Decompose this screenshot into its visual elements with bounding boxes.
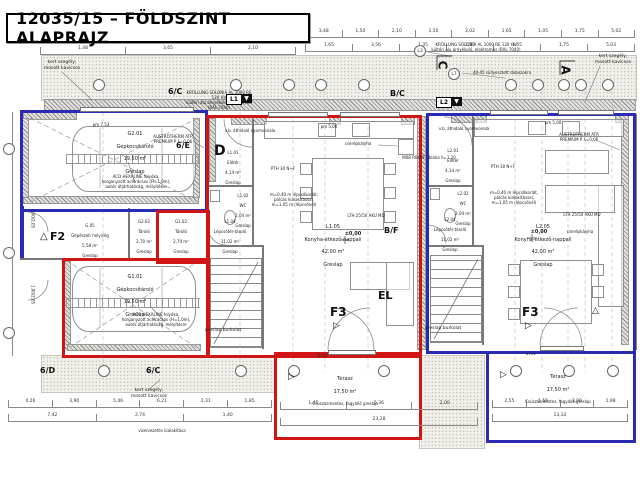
dim-value: 1,65 [488, 30, 525, 37]
dim-value: 2,74 [96, 414, 184, 421]
room-area: 4,14 m² [436, 168, 470, 173]
note-austrotherm-1: AUSTROTHERM ATR PREMIUM P λ=0,06 [148, 134, 198, 144]
room-floor: Greslap [130, 249, 158, 254]
marker-terrace-2-triangle: ▷ [500, 370, 507, 380]
dim-value: 2,10 [210, 47, 296, 54]
terrace-door-l2 [540, 346, 584, 351]
grid-bubble [358, 79, 370, 91]
dim-value: 1,75 [561, 30, 598, 37]
grid-bubble [3, 247, 15, 259]
note-greslap-2: greslap burkolat [414, 326, 472, 332]
dim-value: 1,50 [415, 30, 452, 37]
room-label-l1-05: L1.05 Konyha-étkező-nappali 42,00 m² Gre… [288, 218, 378, 274]
grid-bubble [575, 79, 587, 91]
dim-value: 3,48 [305, 30, 342, 37]
marker-flag-l1-triangle: ▼ [241, 94, 252, 103]
room-id: L2.04 [420, 217, 480, 222]
note-lth-2: LTH 25/50 AKU MD [554, 212, 610, 217]
room-id: L1.05 [288, 224, 378, 230]
callout-bubble-l7: L7 [448, 68, 460, 80]
window [340, 112, 400, 117]
marker-section-d: D [214, 143, 226, 159]
note-pm5-2: pm 5,00 [538, 120, 568, 125]
note-dobozok: 40-45 süllyesztett dobozokra [466, 70, 538, 75]
grid-bubble [505, 79, 517, 91]
room-name: Terasz [518, 374, 598, 380]
room-id: G1.01 [96, 274, 174, 280]
room-id: L2.01 [436, 148, 470, 153]
door-size-code-2: 1,00/2,05 [31, 282, 36, 308]
room-id: G2.02 [130, 219, 158, 224]
dim-chain-bottom-left-2: 7,422,741,40 [8, 414, 272, 422]
room-area: 17,50 m² [305, 389, 385, 395]
window [268, 112, 328, 117]
dim-value: 3,56 [352, 44, 399, 51]
room-name: Gépkocsitároló [96, 287, 174, 293]
marker-el: EL [378, 289, 393, 302]
room-area: 11,02 m² [200, 239, 260, 244]
marker-6c-bottom: 6/C [146, 366, 160, 375]
grid-bubble [235, 365, 247, 377]
marker-terrace-1-triangle: ▷ [288, 372, 295, 382]
marker-section-c: C [435, 61, 449, 70]
room-area: 17,50 m² [518, 387, 598, 393]
grid-bubble [98, 365, 110, 377]
dim-value: 3,02 [451, 30, 488, 37]
room-floor: Csúszásmentes, fagyálló greslap [518, 399, 598, 404]
room-name: Konyha-étkező-nappali [498, 237, 588, 243]
dim-value: 1,50 [342, 30, 379, 37]
room-name: Konyha-étkező-nappali [288, 237, 378, 243]
grid-bubble [93, 79, 105, 91]
note-kert-top-left: kert szegély, mosott kavicsos [30, 60, 94, 71]
note-aco-1: ACO HEXALINE folyóka, horganyzott acélrá… [98, 174, 174, 189]
marker-6c-top: 6/C [168, 87, 182, 96]
room-area: 19,50 m² [96, 299, 174, 305]
door-size-code-1: 1,00/2,05 [31, 206, 36, 232]
dim-chain-top-1: 3,481,502,101,503,021,651,051,755,02 [305, 30, 635, 38]
room-area: 42,00 m² [498, 249, 588, 255]
room-label-g2-02: G2.02 Tároló 2,70 m² Greslap [130, 214, 158, 259]
room-area: 42,00 m² [288, 249, 378, 255]
marker-bc: B/C [390, 89, 405, 98]
room-name: Terasz [305, 376, 385, 382]
marker-f3-l1: F3 [330, 305, 347, 319]
dim-value: 5,02 [598, 30, 636, 37]
dim-value: 3,90 [52, 400, 96, 407]
room-area: 2,70 m² [164, 239, 198, 244]
dim-value: 2,10 [378, 30, 415, 37]
room-label-l2-01: L2.01 Előtér 4,14 m² Greslap [436, 143, 470, 188]
dim-value: 13,32 [492, 414, 628, 421]
dim-chain-bottom-mid-2: 23,28 [280, 418, 478, 426]
garage-door-top [80, 107, 194, 112]
dim-value: 5,03 [587, 44, 635, 51]
note-pth-1: PTH 30 N+F [266, 166, 300, 171]
note-kert-bottom: kert szegély, mosott kavicsos [118, 388, 180, 399]
note-kert-top-right: kert szegély, mosott kavicsos [588, 54, 638, 65]
room-floor: Greslap [216, 180, 250, 185]
note-lth-1: LTH 25/50 AKU MD [338, 213, 394, 218]
room-area: 11,02 m² [420, 237, 480, 242]
marker-6e: 6/E [176, 141, 190, 150]
dim-value: 1,40 [183, 414, 272, 421]
room-label-l2-05: L2.05 Konyha-étkező-nappali 42,00 m² Gre… [498, 218, 588, 274]
room-area: 19,50 m² [96, 156, 174, 162]
dim-value: 2,00 [411, 402, 478, 409]
drawing-title: 12035/15 – FÖLDSZINT ALAPRAJZ [6, 13, 310, 43]
dim-value: 1,75 [540, 44, 587, 51]
note-korlat-2: m=0,40 m lépcsőkorlát, pálcás kialakítás… [484, 190, 544, 205]
dim-value: 5,46 [96, 400, 140, 407]
callout-bubble-l3: L3 [414, 45, 426, 57]
terrace-door-l1 [328, 350, 376, 355]
note-austrotherm-2: AUSTROTHERM ATR PREMIUM P λ=0,06 [554, 132, 604, 142]
room-floor: Greslap [498, 262, 588, 268]
room-label-g1-02: G1.02 Tároló 2,70 m² Greslap [164, 214, 198, 259]
marker-f2: F2 [50, 230, 65, 243]
grid-bubble [3, 143, 15, 155]
dim-value: 23,28 [280, 418, 478, 425]
room-label-g-05: G.05 Gépészeti helyiség 5,58 m² Greslap [58, 218, 122, 263]
marker-flag-l1: L1 [226, 94, 242, 105]
grid-bubble [3, 327, 15, 339]
room-floor: Greslap [164, 249, 198, 254]
note-pth-2: PTH 30 N+F [486, 164, 520, 169]
room-name: Gépkocsitároló [96, 144, 174, 150]
room-label-l2-04: L2.04 Lépcsőtér-tároló 11,02 m² Greslap [420, 212, 480, 257]
dim-value: 1,85 [227, 400, 272, 407]
note-vb-2: v.b. áthidaló nyomvonala [428, 126, 500, 131]
dim-chain-bottom-right-2: 13,32 [492, 414, 628, 422]
window [490, 110, 548, 115]
room-id: G1.02 [164, 219, 198, 224]
note-vb-1: v.b. áthidaló nyomvonala [214, 128, 286, 133]
grid-bubble [602, 79, 614, 91]
note-greslap-1: greslap burkolat [194, 328, 252, 334]
grid-bubble [558, 79, 570, 91]
level-mark-terrace-2: -0,01 [518, 352, 542, 358]
room-name: WC [448, 201, 478, 206]
dim-value: 1,05 [524, 30, 561, 37]
dim-chain-top-left: 1,483,652,10 [40, 47, 296, 55]
dim-value: 4,26 [8, 400, 52, 407]
marker-6d-bottom: 6/D [40, 366, 55, 375]
marker-flag-l2: L2 [436, 97, 452, 108]
grid-bubble [315, 79, 327, 91]
room-floor: Csúszásmentes, fagyálló greslap [305, 401, 385, 406]
dim-value: 2,31 [183, 400, 227, 407]
dim-value: 1,48 [40, 47, 125, 54]
room-id: L2.02 [448, 191, 478, 196]
dim-value: 1,65 [305, 44, 352, 51]
room-area: 2,70 m² [130, 239, 158, 244]
room-id: G.05 [58, 223, 122, 228]
room-floor: Greslap [288, 262, 378, 268]
dim-value: 6,21 [139, 400, 183, 407]
wall-stub-blue-left [20, 206, 24, 258]
room-name: Előtér [216, 160, 250, 165]
window [558, 110, 614, 115]
marker-section-a: A [559, 65, 573, 74]
note-aco-2: ACO HEXALINE folyóka, horganyzott acélrá… [118, 312, 194, 327]
room-name: Tároló [164, 229, 198, 234]
room-label-terasz-2: Terasz 17,50 m² Csúszásmentes, fagyálló … [518, 368, 598, 411]
marker-kitchen-triangle: △ [592, 306, 599, 316]
dim-chain-bottom-left-1: 4,263,905,466,212,311,85 [8, 400, 272, 408]
note-vizelvezetes: vízelvezetés kialakítása [126, 428, 198, 433]
grid-bubble [283, 79, 295, 91]
floor-plan-drawing: 12035/15 – FÖLDSZINT ALAPRAJZ [0, 0, 640, 480]
room-floor: Greslap [420, 247, 480, 252]
room-area: 5,58 m² [58, 243, 122, 248]
level-mark-l1: ±0,00 [338, 231, 368, 237]
dim-value: 7,42 [8, 414, 96, 421]
note-pm5-1: pm 5,00 [314, 124, 344, 129]
room-area: 4,14 m² [216, 170, 250, 175]
note-cserep-1: cserépkályha [336, 141, 380, 146]
note-cserep-2: cserépkályha [558, 229, 602, 234]
room-label-terasz-1: Terasz 17,50 m² Csúszásmentes, fagyálló … [305, 370, 385, 413]
note-krullung-top: KRÜLLUNG SOLONIA AL 1000 RE 120 HV külté… [430, 42, 522, 52]
grid-bubble [607, 365, 619, 377]
room-label-l1-04: L1.04 Lépcsőtér-tároló 11,02 m² Greslap [200, 214, 260, 259]
room-id: L1.02 [228, 193, 258, 198]
level-mark-terrace-1: -0,01 [310, 354, 334, 360]
room-floor: Greslap [436, 178, 470, 183]
dim-value: 3,65 [125, 47, 210, 54]
marker-f2-triangle: △ [40, 231, 48, 242]
room-name: Gépészeti helyiség [58, 233, 122, 238]
marker-f3-l2: F3 [522, 305, 539, 319]
room-id: L1.04 [200, 219, 260, 224]
grid-bubble [532, 79, 544, 91]
room-name: WC [228, 203, 258, 208]
note-korlat-1: m=0,40 m lépcsőkorlát, pálcás kialakítás… [264, 192, 324, 207]
level-mark-l2: ±0,00 [524, 229, 554, 235]
room-name: Lépcsőtér-tároló [200, 229, 260, 234]
marker-f3-l2-triangle: ▷ [525, 321, 532, 331]
note-mq-window: M08 R04UF ablaka h=1,20 [398, 155, 460, 160]
room-floor: Greslap [58, 253, 122, 258]
room-name: Lépcsőtér-tároló [420, 227, 480, 232]
room-name: Tároló [130, 229, 158, 234]
marker-bf: B/F [384, 226, 398, 235]
dim-value: 1,98 [593, 400, 628, 407]
room-floor: Greslap [200, 249, 260, 254]
note-pm753: pm 7,53 [86, 122, 116, 127]
marker-f3-l1-triangle: ▷ [333, 321, 340, 331]
marker-flag-l2-triangle: ▼ [451, 97, 462, 106]
